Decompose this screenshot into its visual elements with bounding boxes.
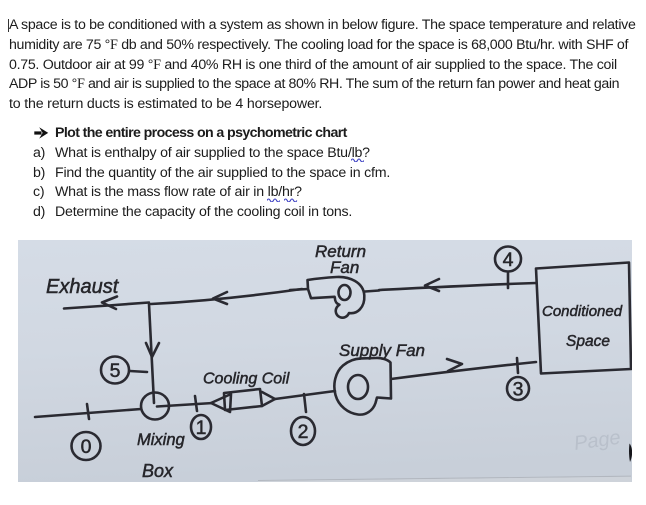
svg-text:2: 2 bbox=[298, 421, 309, 443]
svg-text:Mixing: Mixing bbox=[137, 431, 186, 449]
svg-text:3: 3 bbox=[513, 379, 524, 401]
svg-text:Cooling Coil: Cooling Coil bbox=[203, 371, 290, 388]
svg-text:Conditioned: Conditioned bbox=[542, 303, 623, 320]
svg-text:Fan: Fan bbox=[330, 258, 359, 277]
svg-text:1: 1 bbox=[196, 417, 207, 439]
svg-text:Exhaust: Exhaust bbox=[46, 276, 120, 298]
svg-text:5: 5 bbox=[110, 360, 121, 382]
svg-text:4: 4 bbox=[503, 249, 514, 271]
svg-text:Supply Fan: Supply Fan bbox=[339, 341, 425, 360]
svg-text:0: 0 bbox=[81, 436, 92, 458]
svg-text:Space: Space bbox=[566, 333, 610, 350]
svg-text:Box: Box bbox=[142, 461, 174, 481]
